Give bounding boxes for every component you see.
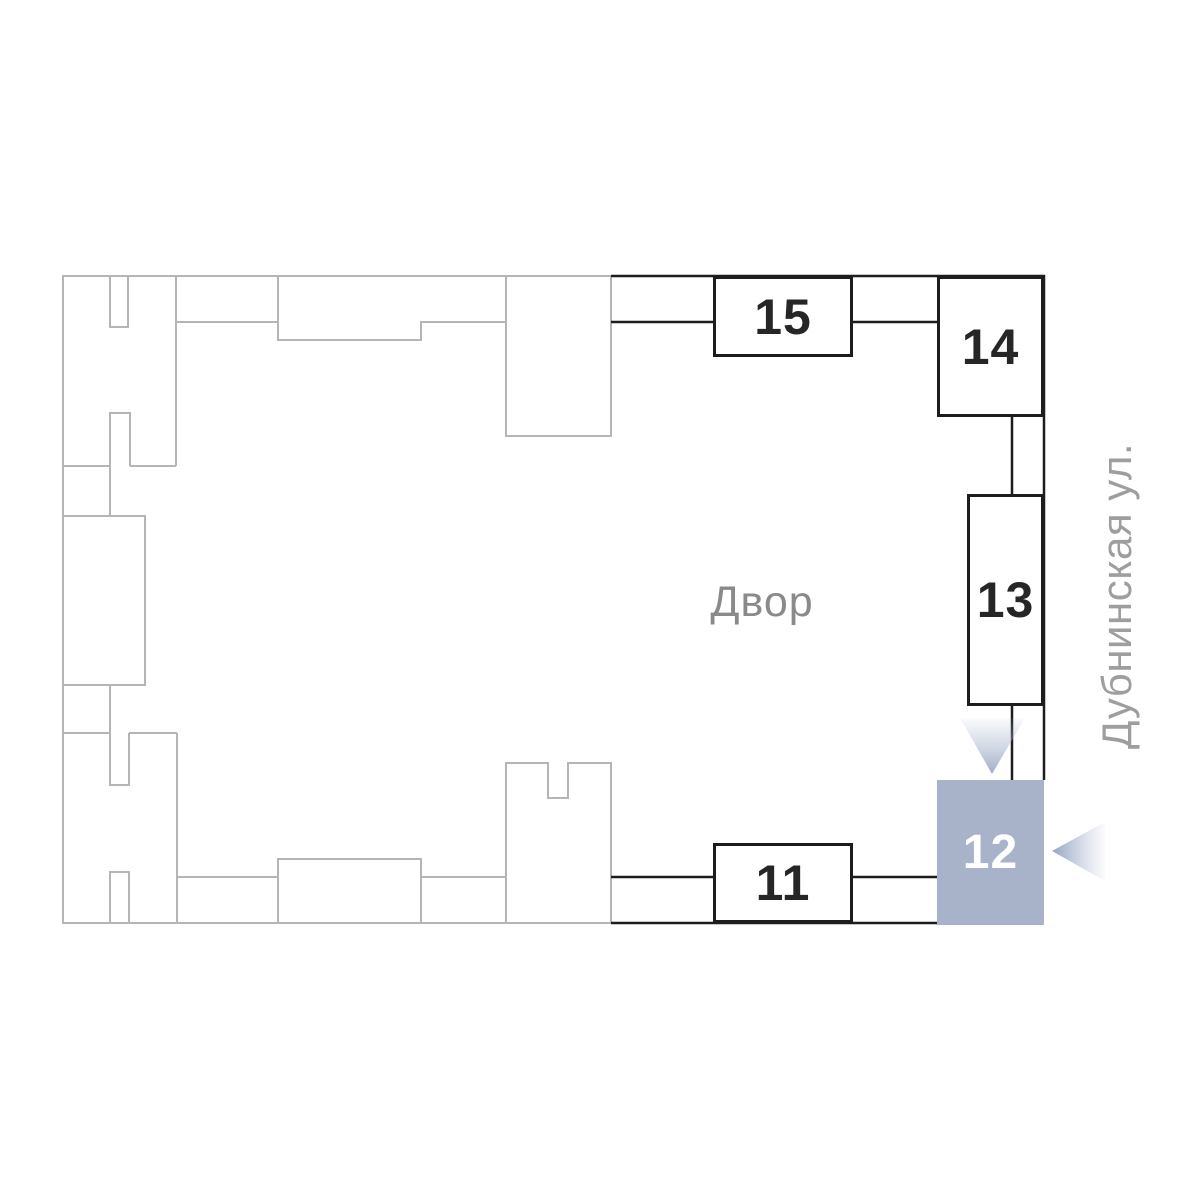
courtyard-label: Двор [612, 575, 912, 629]
building-number: 13 [977, 571, 1035, 629]
building-block-11[interactable]: 11 [713, 843, 853, 923]
arrow-left-icon [1052, 822, 1105, 881]
building-block-14[interactable]: 14 [937, 276, 1044, 417]
arrow-down-icon [960, 718, 1025, 774]
building-block-15[interactable]: 15 [713, 276, 853, 357]
building-block-12-selected[interactable]: 12 [937, 780, 1044, 925]
building-number: 12 [963, 825, 1018, 880]
street-name-label: Дубнинская ул. [1093, 386, 1141, 806]
building-number: 14 [962, 318, 1020, 376]
building-number: 11 [756, 854, 811, 912]
building-block-13[interactable]: 13 [967, 494, 1044, 706]
building-number: 15 [754, 288, 812, 346]
site-plan: 15 14 13 12 11 Двор Дубнинская ул. [0, 0, 1200, 1200]
gray-building-outline [63, 276, 611, 923]
